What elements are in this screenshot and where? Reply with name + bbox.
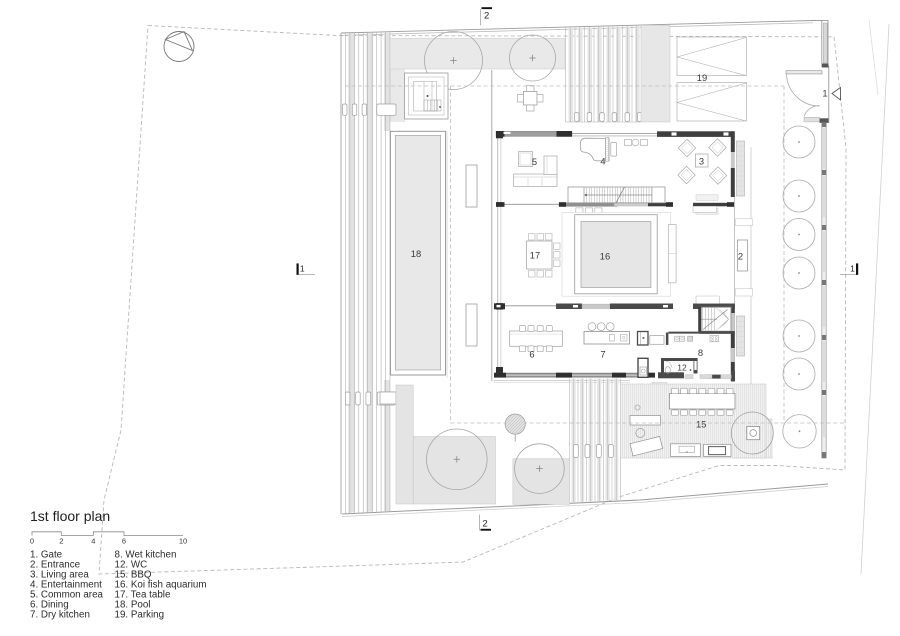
svg-text:3: 3 (699, 156, 704, 167)
svg-text:2: 2 (484, 10, 489, 21)
svg-text:6: 6 (529, 349, 534, 360)
svg-text:0: 0 (30, 537, 34, 546)
svg-text:2: 2 (59, 537, 63, 546)
svg-text:4: 4 (91, 537, 95, 546)
svg-text:15: 15 (696, 419, 706, 430)
svg-text:8: 8 (698, 347, 703, 358)
svg-text:2: 2 (738, 251, 743, 262)
svg-text:7. Dry kitchen: 7. Dry kitchen (30, 610, 90, 621)
svg-text:2: 2 (482, 519, 487, 530)
svg-text:10: 10 (179, 537, 187, 546)
svg-text:1: 1 (300, 264, 305, 274)
svg-text:6: 6 (122, 537, 126, 546)
svg-text:1: 1 (850, 264, 855, 274)
svg-text:1st floor plan: 1st floor plan (30, 508, 110, 524)
svg-text:19. Parking: 19. Parking (115, 610, 165, 621)
svg-text:7: 7 (600, 349, 605, 360)
svg-text:17: 17 (530, 250, 540, 261)
svg-text:18: 18 (411, 248, 421, 259)
svg-text:12: 12 (677, 363, 687, 373)
svg-text:1: 1 (822, 88, 827, 99)
svg-text:5: 5 (532, 156, 537, 167)
svg-text:19: 19 (697, 72, 707, 83)
svg-text:4: 4 (600, 156, 605, 167)
svg-text:16: 16 (600, 251, 610, 262)
